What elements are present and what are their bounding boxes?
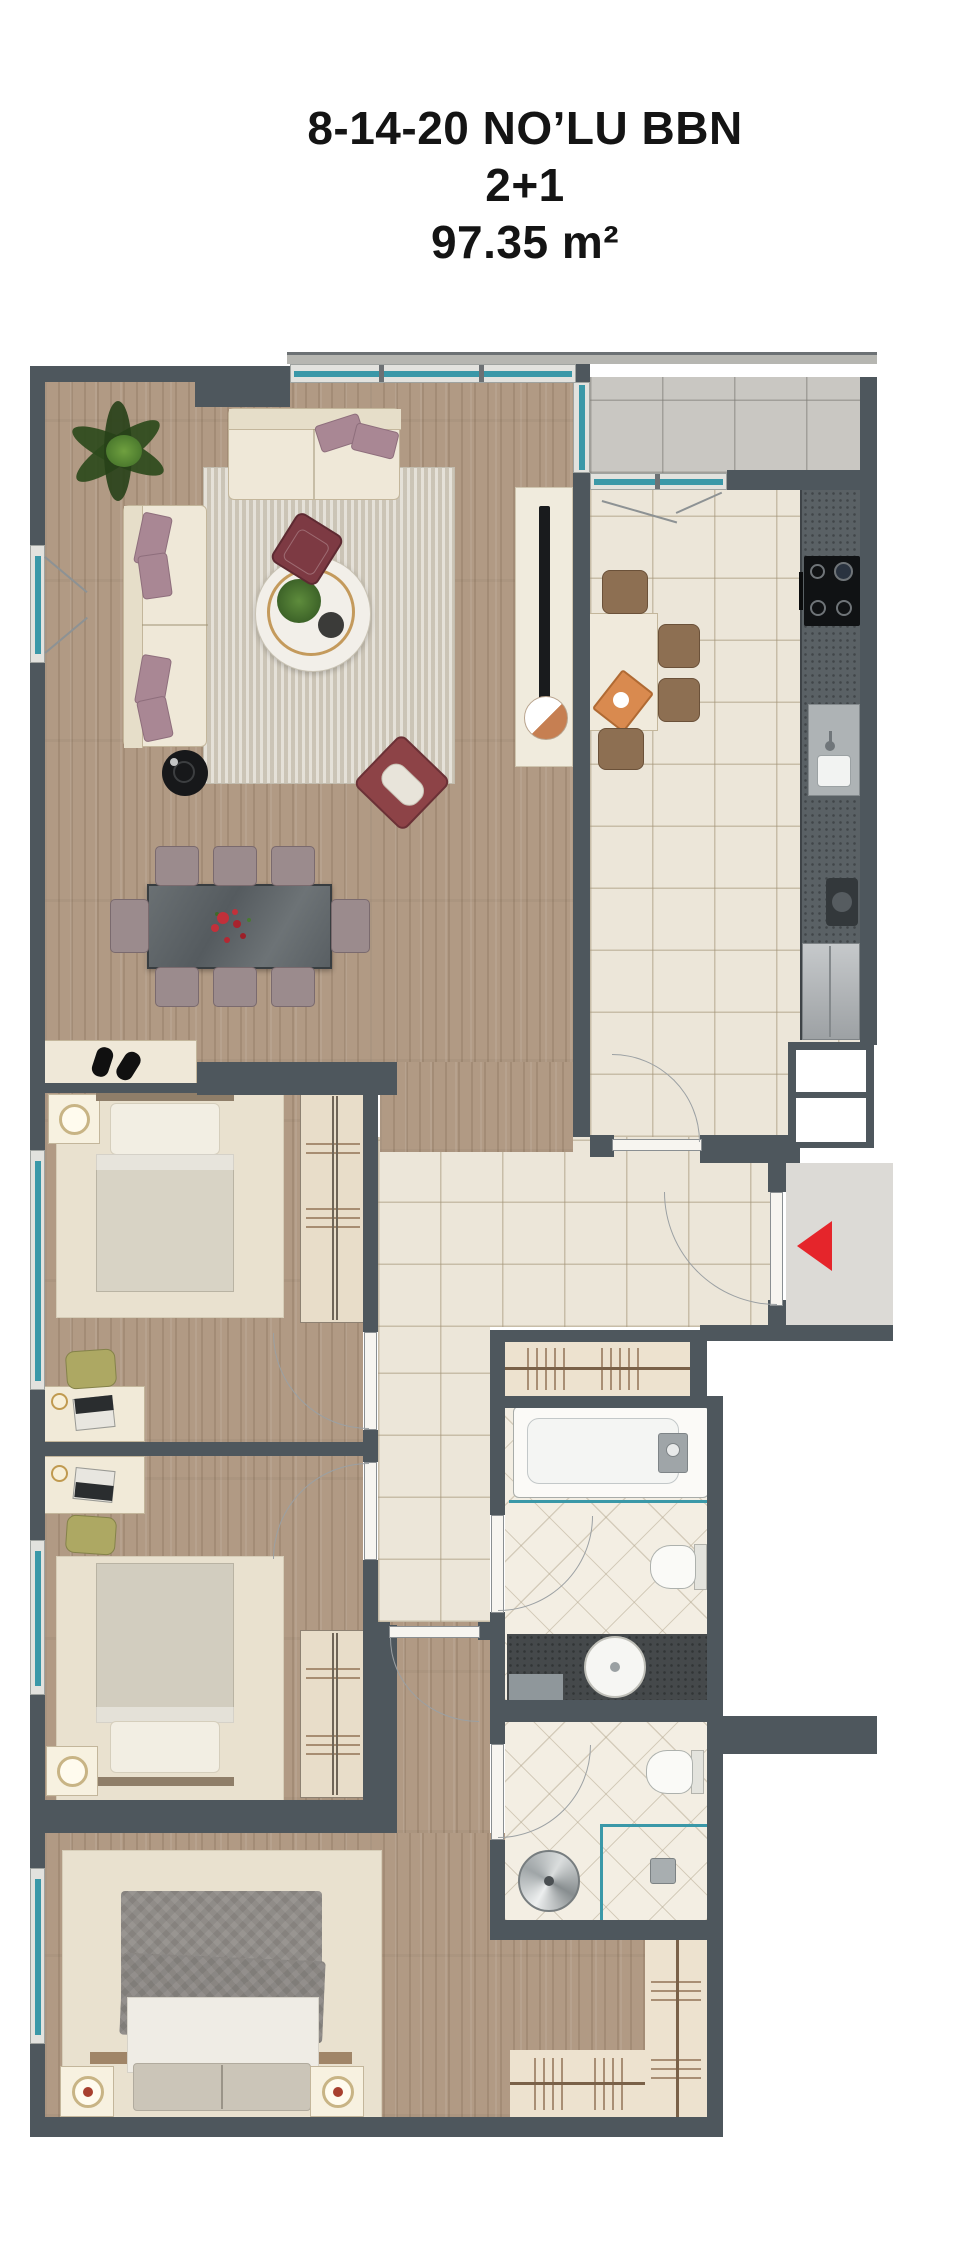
wall-segment <box>505 1330 707 1342</box>
bedroom2-desk-chair <box>65 1514 118 1555</box>
fridge <box>802 943 860 1040</box>
wall-segment <box>490 1700 723 1722</box>
bed-pillow <box>110 1103 220 1155</box>
service-shaft <box>788 1042 874 1148</box>
master-bed <box>121 1891 322 2117</box>
dining-chair <box>271 846 315 886</box>
bedroom1-desk <box>43 1386 145 1442</box>
desk-lamp <box>51 1393 68 1410</box>
door-frame-post <box>768 1158 786 1192</box>
bedroom2-desk <box>43 1456 145 1514</box>
desk-lamp <box>51 1465 68 1482</box>
shoes <box>113 1049 143 1083</box>
dressing-closet-vertical <box>645 1933 707 2117</box>
window-mullion <box>379 365 384 382</box>
balcony-floor <box>590 377 863 473</box>
wardrobe-rail <box>336 1633 338 1795</box>
master-bedroom-window <box>30 1868 45 2044</box>
wall-segment <box>707 1940 723 2117</box>
toilet-2 <box>646 1748 704 1796</box>
wall-segment <box>363 1092 378 1332</box>
bed-headboard <box>96 1777 234 1786</box>
wall-segment <box>30 1800 397 1833</box>
appliance-dial <box>832 892 852 912</box>
sofa-seam <box>313 429 315 499</box>
potted-plant <box>58 391 178 511</box>
wall-segment <box>490 1920 723 1940</box>
dining-chair <box>213 846 257 886</box>
faucet-stem <box>829 731 832 743</box>
sink-drain <box>610 1662 620 1672</box>
kitchen-chair <box>658 624 700 668</box>
wall-segment <box>30 2117 723 2137</box>
pillow-split <box>221 2065 223 2109</box>
wall-segment <box>363 1430 378 1462</box>
bedroom1-nightstand <box>48 1094 100 1144</box>
corridor-tile-floor <box>378 1327 490 1622</box>
wardrobe-rail <box>332 1096 334 1320</box>
bedroom2-window <box>30 1540 45 1695</box>
floor-plan <box>0 0 960 2262</box>
wall-segment <box>505 1396 720 1408</box>
burner <box>810 564 825 579</box>
bedroom2-nightstand <box>46 1746 98 1796</box>
linen-closet <box>505 1342 690 1396</box>
bedroom2-bed <box>96 1563 234 1787</box>
wall-segment <box>590 1135 614 1157</box>
window-glass <box>35 1879 41 2035</box>
tv-unit <box>515 487 573 767</box>
bedroom1-window <box>30 1150 45 1390</box>
bed-sheet <box>127 1997 319 2073</box>
window-glass <box>35 556 41 654</box>
window-glass <box>579 385 585 470</box>
chair-seat-line <box>281 527 331 577</box>
table-bowl <box>318 612 344 638</box>
corner-window <box>573 382 590 473</box>
nightstand-lamp <box>59 1104 90 1135</box>
closet-rod <box>505 1367 690 1370</box>
plant-center <box>106 435 142 467</box>
kitchen-sink <box>808 704 860 796</box>
toilet-bowl <box>646 1750 693 1794</box>
sofa-seam <box>142 624 208 626</box>
nightstand-lamp <box>57 1756 88 1787</box>
bathtub-inner <box>527 1418 679 1484</box>
dining-chair <box>110 899 149 953</box>
wall-segment <box>45 1083 197 1093</box>
wall-segment <box>478 1622 505 1640</box>
wall-segment <box>197 1062 397 1095</box>
oven-handle <box>799 572 803 610</box>
shower-glass-horizontal <box>600 1824 708 1827</box>
closet-rod <box>510 2082 645 2085</box>
living-room-window-top <box>290 364 576 383</box>
bed-blanket <box>96 1563 234 1723</box>
flower-centerpiece <box>217 912 229 924</box>
bedroom1-bed <box>96 1092 234 1292</box>
wall-segment <box>723 1716 877 1754</box>
fridge-door-split <box>829 946 831 1037</box>
balcony-ledge <box>287 352 877 364</box>
wall-segment <box>727 470 860 490</box>
bathtub <box>513 1406 709 1498</box>
sofa-top <box>228 408 400 500</box>
kitchen-balcony-window <box>590 473 727 490</box>
bed-blanket <box>96 1154 234 1292</box>
burner <box>834 562 853 581</box>
window-glass <box>35 1551 41 1686</box>
shower-glass-screen <box>509 1500 709 1503</box>
wall-segment <box>700 1325 893 1341</box>
kitchen-chair <box>598 728 644 770</box>
wall-segment <box>363 1560 378 1625</box>
window-glass <box>35 1161 41 1381</box>
small-appliance <box>826 878 858 926</box>
kitchen-chair <box>602 570 648 614</box>
lamp-flower <box>333 2087 343 2097</box>
table-plant <box>277 579 321 623</box>
sofa-pillow <box>137 552 173 600</box>
dining-chair <box>271 967 315 1007</box>
wall-segment <box>30 366 195 382</box>
window-mullion <box>479 365 484 382</box>
kitchen-chair <box>658 678 700 722</box>
lamp-flower <box>83 2087 93 2097</box>
bedroom2-wardrobe <box>300 1630 367 1798</box>
shoes <box>90 1045 115 1079</box>
sink-drain <box>544 1876 554 1886</box>
lamp-highlight <box>170 758 178 766</box>
wardrobe-rail <box>332 1633 334 1795</box>
plate <box>613 692 629 708</box>
closet-rod <box>676 1933 679 2117</box>
living-room-window-left <box>30 545 45 663</box>
burner <box>836 600 852 616</box>
shoe-bench <box>43 1040 197 1085</box>
burner <box>810 600 826 616</box>
kitchen-table <box>588 613 658 731</box>
bed-pillow <box>110 1721 220 1773</box>
cooktop <box>804 556 860 626</box>
dining-chair <box>331 899 370 953</box>
dining-chair <box>155 967 199 1007</box>
entry-direction-arrow-icon <box>797 1221 832 1271</box>
toilet-bowl <box>650 1545 696 1589</box>
wall-segment <box>195 366 290 407</box>
master-nightstand-left <box>60 2066 114 2117</box>
shaft-cell <box>796 1050 866 1092</box>
vanity-shelf <box>509 1674 563 1700</box>
decor-tray <box>524 696 568 740</box>
bedroom1-desk-chair <box>65 1348 118 1389</box>
living-room-floor-c <box>380 1062 573 1152</box>
bedroom1-wardrobe <box>300 1093 367 1323</box>
window-mullion <box>655 474 660 489</box>
wall-segment <box>490 1330 505 1515</box>
wall-segment <box>860 377 877 1045</box>
master-door-leaf <box>389 1626 480 1638</box>
wardrobe-rail <box>336 1096 338 1320</box>
floorplan-page: 8-14-20 NO’LU BBN 2+1 97.35 m² <box>0 0 960 2262</box>
toilet-1 <box>650 1542 707 1592</box>
sofa-left <box>123 505 207 747</box>
shower-fixture <box>650 1858 676 1884</box>
wall-segment <box>45 1442 363 1456</box>
wall-segment <box>573 473 590 1137</box>
dressing-closet-bottom <box>510 2050 645 2117</box>
dining-chair <box>213 967 257 1007</box>
faucet-knob <box>666 1443 680 1457</box>
wall-segment <box>707 1396 723 1942</box>
blanket-fold <box>96 1154 234 1170</box>
dining-table <box>147 884 332 969</box>
dining-chair <box>155 846 199 886</box>
master-nightstand-right <box>310 2066 364 2117</box>
shower-glass-vertical <box>600 1824 603 1920</box>
tv-screen <box>539 506 550 704</box>
floor-lamp <box>162 750 208 796</box>
window-glass <box>294 371 572 377</box>
sink-basin <box>817 755 851 787</box>
shaft-cell <box>796 1098 866 1142</box>
